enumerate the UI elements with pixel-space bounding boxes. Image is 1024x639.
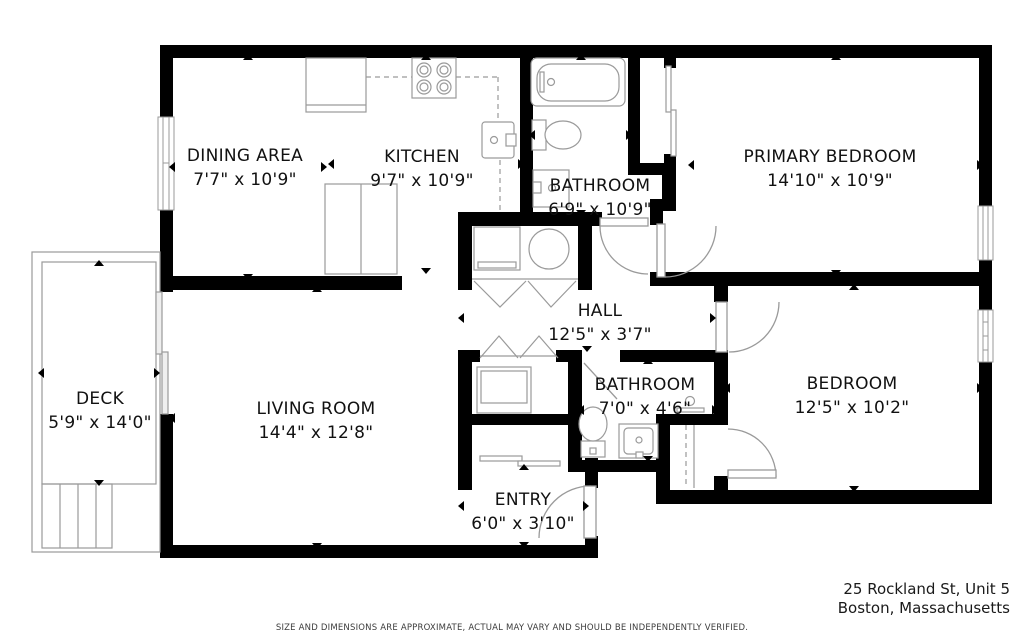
measurement-arrow-dining-area [169,162,175,172]
room-label-bedroom: BEDROOM12'5" x 10'2" [795,372,910,420]
room-name: BATHROOM [550,176,651,196]
room-label-hall: HALL12'5" x 3'7" [548,299,652,347]
wall-jog-vertical [662,175,676,201]
room-label-dining-area: DINING AREA7'7" x 10'9" [187,144,303,192]
measurement-arrow-bathroom-2 [643,456,653,462]
room-name: HALL [578,301,623,321]
measurement-arrow-living-room [458,413,464,423]
shower-nook-door [728,429,776,478]
wall-bedrooms-divider [650,272,992,286]
deck-stairs [42,484,112,548]
measurement-arrow-living-room [312,286,322,292]
measurement-arrow-dining-area [321,162,327,172]
room-dimensions: 12'5" x 10'2" [795,396,910,420]
measurement-arrow-kitchen [421,54,431,60]
toilet-bathroom1 [532,120,581,150]
bifold-doors-hall-closet [480,336,558,358]
measurement-arrow-bathroom-2 [712,405,718,415]
measurement-arrow-bathroom-1 [626,130,632,140]
measurement-arrow-entry [458,501,464,511]
room-dimensions: 9'7" x 10'9" [370,169,474,193]
room-dimensions: 6'9" x 10'9" [548,198,652,222]
measurement-arrow-primary-bedroom [688,160,694,170]
measurement-arrow-dining-area [243,54,253,60]
measurement-arrow-deck [94,260,104,266]
room-label-living-room: LIVING ROOM14'4" x 12'8" [257,397,376,445]
wall-dining-bottom [160,276,402,290]
measurement-arrow-primary-bedroom [831,54,841,60]
measurement-arrow-dining-area [243,274,253,280]
wall-hall-bottom-c [620,350,728,362]
room-dimensions: 5'9" x 14'0" [48,411,152,435]
deck-floor [42,262,156,484]
measurement-arrow-bedroom [977,383,983,393]
room-label-kitchen: KITCHEN9'7" x 10'9" [370,145,474,193]
wall-bottom-right [656,490,992,504]
disclaimer-text: SIZE AND DIMENSIONS ARE APPROXIMATE, ACT… [0,623,1024,633]
room-dimensions: 14'10" x 10'9" [743,169,916,193]
measurement-arrow-bathroom-2 [578,405,584,415]
window-bedroom [978,310,993,362]
floor-plan-drawing [0,0,1024,639]
primary-bedroom-door [657,224,716,277]
measurement-arrow-bathroom-2 [643,358,653,364]
room-dimensions: 7'7" x 10'9" [187,168,303,192]
wall-bedroom-west-c [714,476,728,504]
room-label-entry: ENTRY6'0" x 3'10" [471,488,575,536]
room-name: DINING AREA [187,146,303,166]
measurement-arrow-bedroom [724,383,730,393]
measurement-arrow-entry [583,501,589,511]
measurement-arrow-kitchen [518,159,524,169]
room-name: DECK [76,389,124,409]
address-line2: Boston, Massachusetts [838,599,1010,618]
room-name: ENTRY [495,490,551,510]
dryer [529,229,569,269]
room-label-primary-bedroom: PRIMARY BEDROOM14'10" x 10'9" [743,145,916,193]
wall-laundry-left [458,212,472,290]
measurement-arrow-hall [710,313,716,323]
measurement-arrow-deck [38,368,44,378]
measurement-arrow-hall [582,346,592,352]
wall-jog-horizontal [650,199,676,211]
bathtub [531,58,625,106]
room-label-deck: DECK5'9" x 14'0" [48,387,152,435]
wall-laundry-right [578,212,592,290]
wall-entry-right-a [585,458,598,488]
wall-closet-divider [458,414,584,425]
measurement-arrow-bedroom [849,486,859,492]
window-primary-bedroom [978,206,993,260]
wall-bathroom2-bottom [568,460,670,472]
measurement-arrow-bathroom-1 [529,130,535,140]
address-block: 25 Rockland St, Unit 5 Boston, Massachus… [838,580,1010,618]
measurement-arrow-living-room [312,543,322,549]
measurement-arrow-hall [582,284,592,290]
measurement-arrow-bedroom [849,284,859,290]
measurement-arrow-bathroom-1 [576,210,586,216]
wall-bottom-left [160,545,598,558]
room-name: LIVING ROOM [257,399,376,419]
wall-bathroom1-east [628,45,640,175]
wall-right-b [979,258,992,312]
room-name: BEDROOM [807,374,898,394]
measurement-arrow-primary-bedroom [977,160,983,170]
wall-bedroom-west-a [714,286,728,302]
kitchen-sink [482,122,516,158]
room-dimensions: 6'0" x 3'10" [471,512,575,536]
bathroom1-door [600,218,648,274]
measurement-arrow-primary-bedroom [831,270,841,276]
hall-closet-shelf [477,367,531,413]
wall-entry-right-b [585,536,598,558]
measurement-arrow-deck [154,368,160,378]
four-burner-stove [412,58,456,98]
kitchen-counter [306,58,366,112]
measurement-arrow-deck [94,480,104,486]
wall-right-c [979,360,992,504]
measurement-arrow-kitchen [421,268,431,274]
room-name: PRIMARY BEDROOM [743,147,916,167]
wall-left-upper [160,45,173,119]
measurement-arrow-bathroom-1 [576,54,586,60]
room-label-bathroom-2: BATHROOM7'0" x 4'6" [595,373,696,421]
room-dimensions: 12'5" x 3'7" [548,323,652,347]
address-line1: 25 Rockland St, Unit 5 [838,580,1010,599]
sliding-glass-door [156,292,168,414]
wall-primary-door-stub [650,211,663,225]
measurement-arrow-entry [519,542,529,548]
measurement-arrow-kitchen [328,159,334,169]
bedroom-entry-door [716,302,779,352]
measurement-arrow-living-room [169,413,175,423]
room-dimensions: 14'4" x 12'8" [257,421,376,445]
room-dimensions: 7'0" x 4'6" [595,397,696,421]
room-label-bathroom-1: BATHROOM6'9" x 10'9" [548,174,652,222]
washer [474,227,520,270]
room-name: KITCHEN [384,147,460,167]
refrigerator [325,184,397,274]
measurement-arrow-hall [458,313,464,323]
sliding-closet-doors-primary [666,66,676,156]
room-name: BATHROOM [595,375,696,395]
floor-plan-page: DINING AREA7'7" x 10'9"KITCHEN9'7" x 10'… [0,0,1024,639]
vanity-sink-bathroom2 [619,424,658,458]
wall-left-lower [160,414,173,558]
measurement-arrow-entry [519,464,529,470]
wall-right-a [979,45,992,208]
